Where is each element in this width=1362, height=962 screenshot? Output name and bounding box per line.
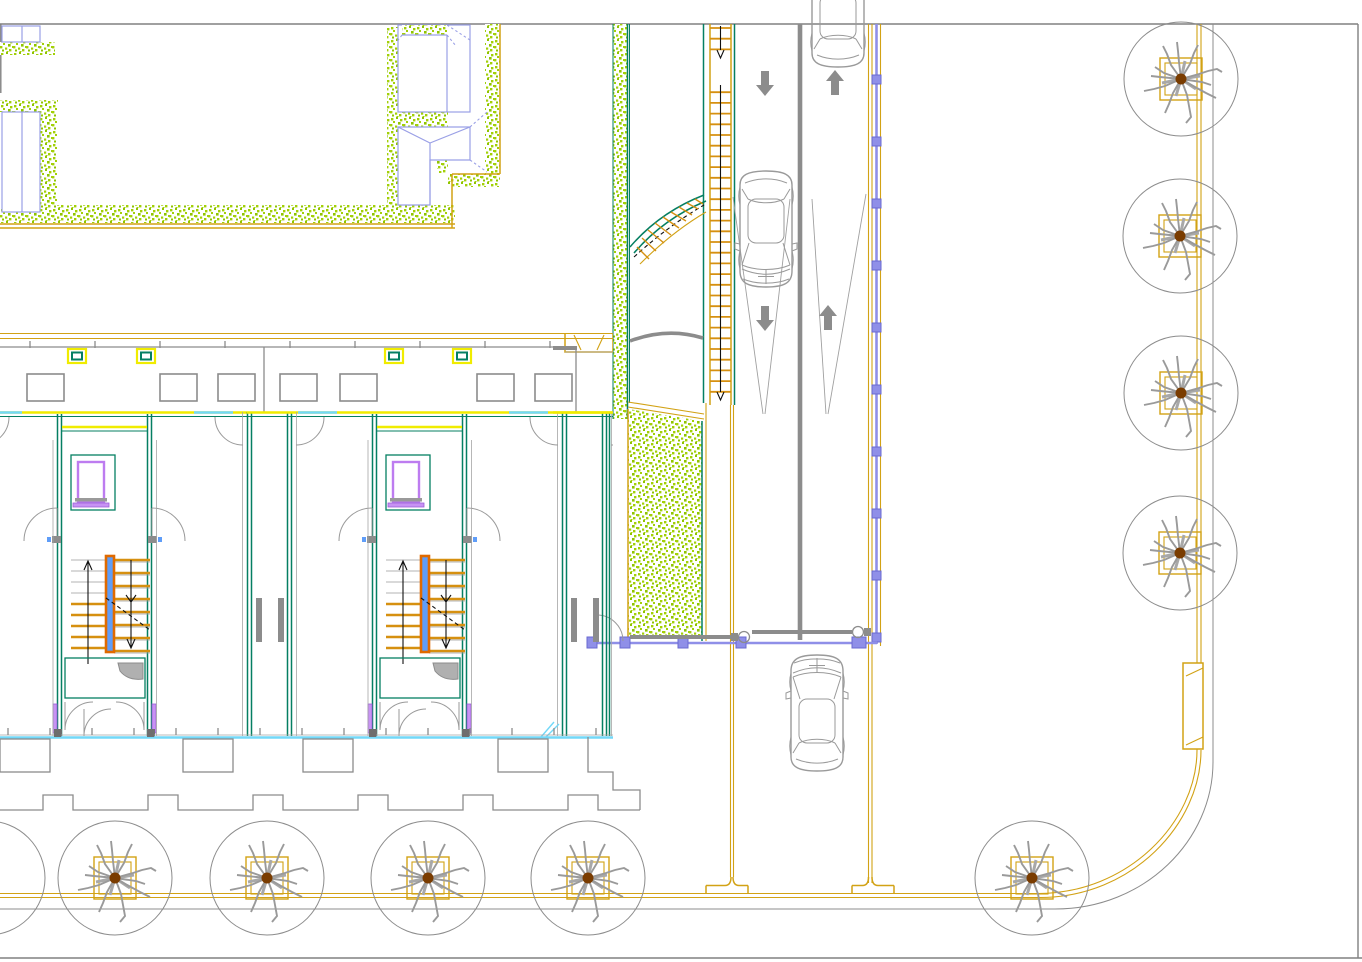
planting-strip [613,24,627,419]
gate-post [620,637,630,648]
fence-post [872,385,881,394]
skylight [535,374,572,401]
tree-symbol [975,821,1089,935]
fence-post [872,137,881,146]
curb-return [852,877,894,894]
tree-symbol [1123,496,1237,610]
unit-modules [0,412,877,737]
townhouse-unit [247,412,562,737]
up-arrow-icon [819,305,837,330]
curved-tread [642,238,656,251]
planting-strip [0,42,55,55]
roof-window [68,349,86,363]
fence-post [872,199,881,208]
fence-post [872,323,881,332]
pedestrian-ramp [710,24,731,405]
fence-post [872,633,881,642]
tree-symbol [58,821,172,935]
balconies-and-parapet [0,737,640,810]
sill-ticks [8,728,596,735]
skylight [218,374,255,401]
skylight [280,374,317,401]
fence-post [872,75,881,84]
tree-symbol [371,821,485,935]
townhouse-row [0,333,877,738]
fence-post [872,447,881,456]
fence-post [872,509,881,518]
jamb-mark [369,729,376,737]
skylight [340,374,377,401]
balcony [183,739,233,772]
down-arrow-icon [756,306,774,331]
skylight [27,374,64,401]
courtyard-building [0,24,500,228]
up-arrow-icon [826,70,844,95]
taper-line [828,194,866,414]
fence-post [872,261,881,270]
landscape-patch [628,403,706,641]
roof-window [137,349,155,363]
skylight [477,374,514,401]
forecourt-curb [0,334,613,339]
tree-symbol [1124,22,1238,136]
taper-line [812,199,826,414]
balcony [498,739,548,772]
roadside-fence [869,24,882,883]
curved-tread [637,247,649,259]
jamb-mark [462,729,469,737]
jamb-mark [54,729,61,737]
gate-post [852,637,866,648]
curved-tread [695,199,703,204]
tree-symbol [210,821,324,935]
tree-symbol [531,821,645,935]
skylight [160,374,197,401]
skylights [27,374,572,401]
walkway-crossline [630,333,703,341]
site-plan-drawing [0,0,1362,962]
roof-window [385,349,403,363]
building-step [588,737,640,810]
jamb-marks [54,729,469,737]
site-plan-canvas [0,0,1362,962]
roof-window [453,349,471,363]
roof-windows [68,349,471,363]
road [733,0,869,771]
townhouse-unit [0,412,247,737]
fence-post [872,571,881,580]
ramp-direction-arrow [717,26,724,400]
tree-canopy-partial [0,821,45,935]
curb-return [706,877,748,894]
planting-strip [0,205,455,223]
car-down [735,171,797,287]
curved-tread [663,217,679,228]
jamb-mark [147,729,154,737]
balcony [303,739,353,772]
parapet-line [0,795,640,810]
tree-symbol [1124,336,1238,450]
car-up [807,0,869,67]
balcony [0,739,50,772]
car-up [786,655,848,771]
down-arrow-icon [756,71,774,96]
curved-tread [671,212,686,221]
tree-symbol [1123,179,1237,293]
